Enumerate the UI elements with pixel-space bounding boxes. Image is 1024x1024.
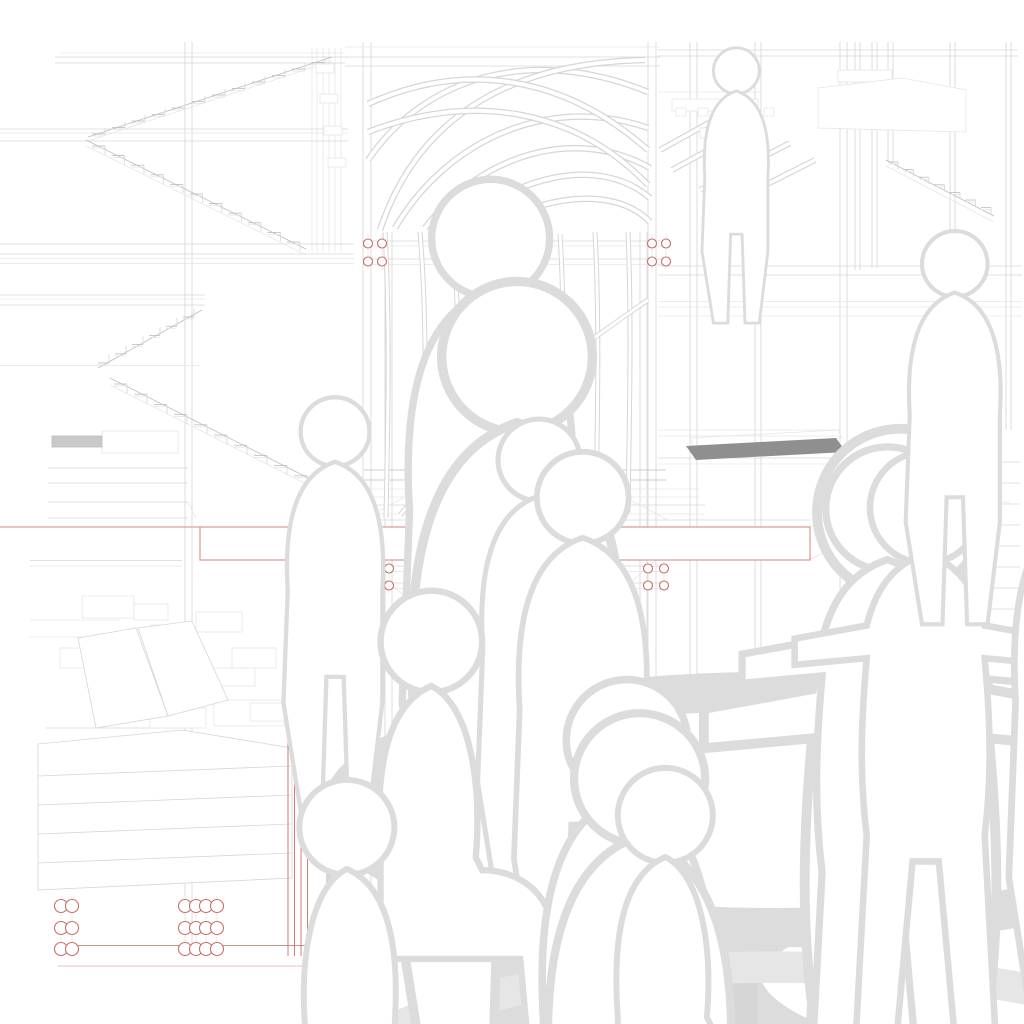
platform-shadow-band [686, 438, 846, 460]
gray-ledge [52, 436, 102, 447]
eave-shadow-wedge [332, 236, 360, 250]
roof-plane [38, 730, 292, 890]
tiled-roof [38, 730, 292, 890]
drawing-canvas: Sectional perspective architectural draw… [0, 0, 1024, 1024]
left-slat-row [48, 502, 188, 518]
figure-stand [283, 397, 383, 810]
left-eave-hatch [48, 468, 188, 483]
architectural-section-drawing: Sectional perspective architectural draw… [0, 0, 1024, 1024]
left-slat-box [48, 551, 98, 571]
figure-stand [702, 48, 768, 323]
upper-wall-panel [818, 78, 966, 132]
